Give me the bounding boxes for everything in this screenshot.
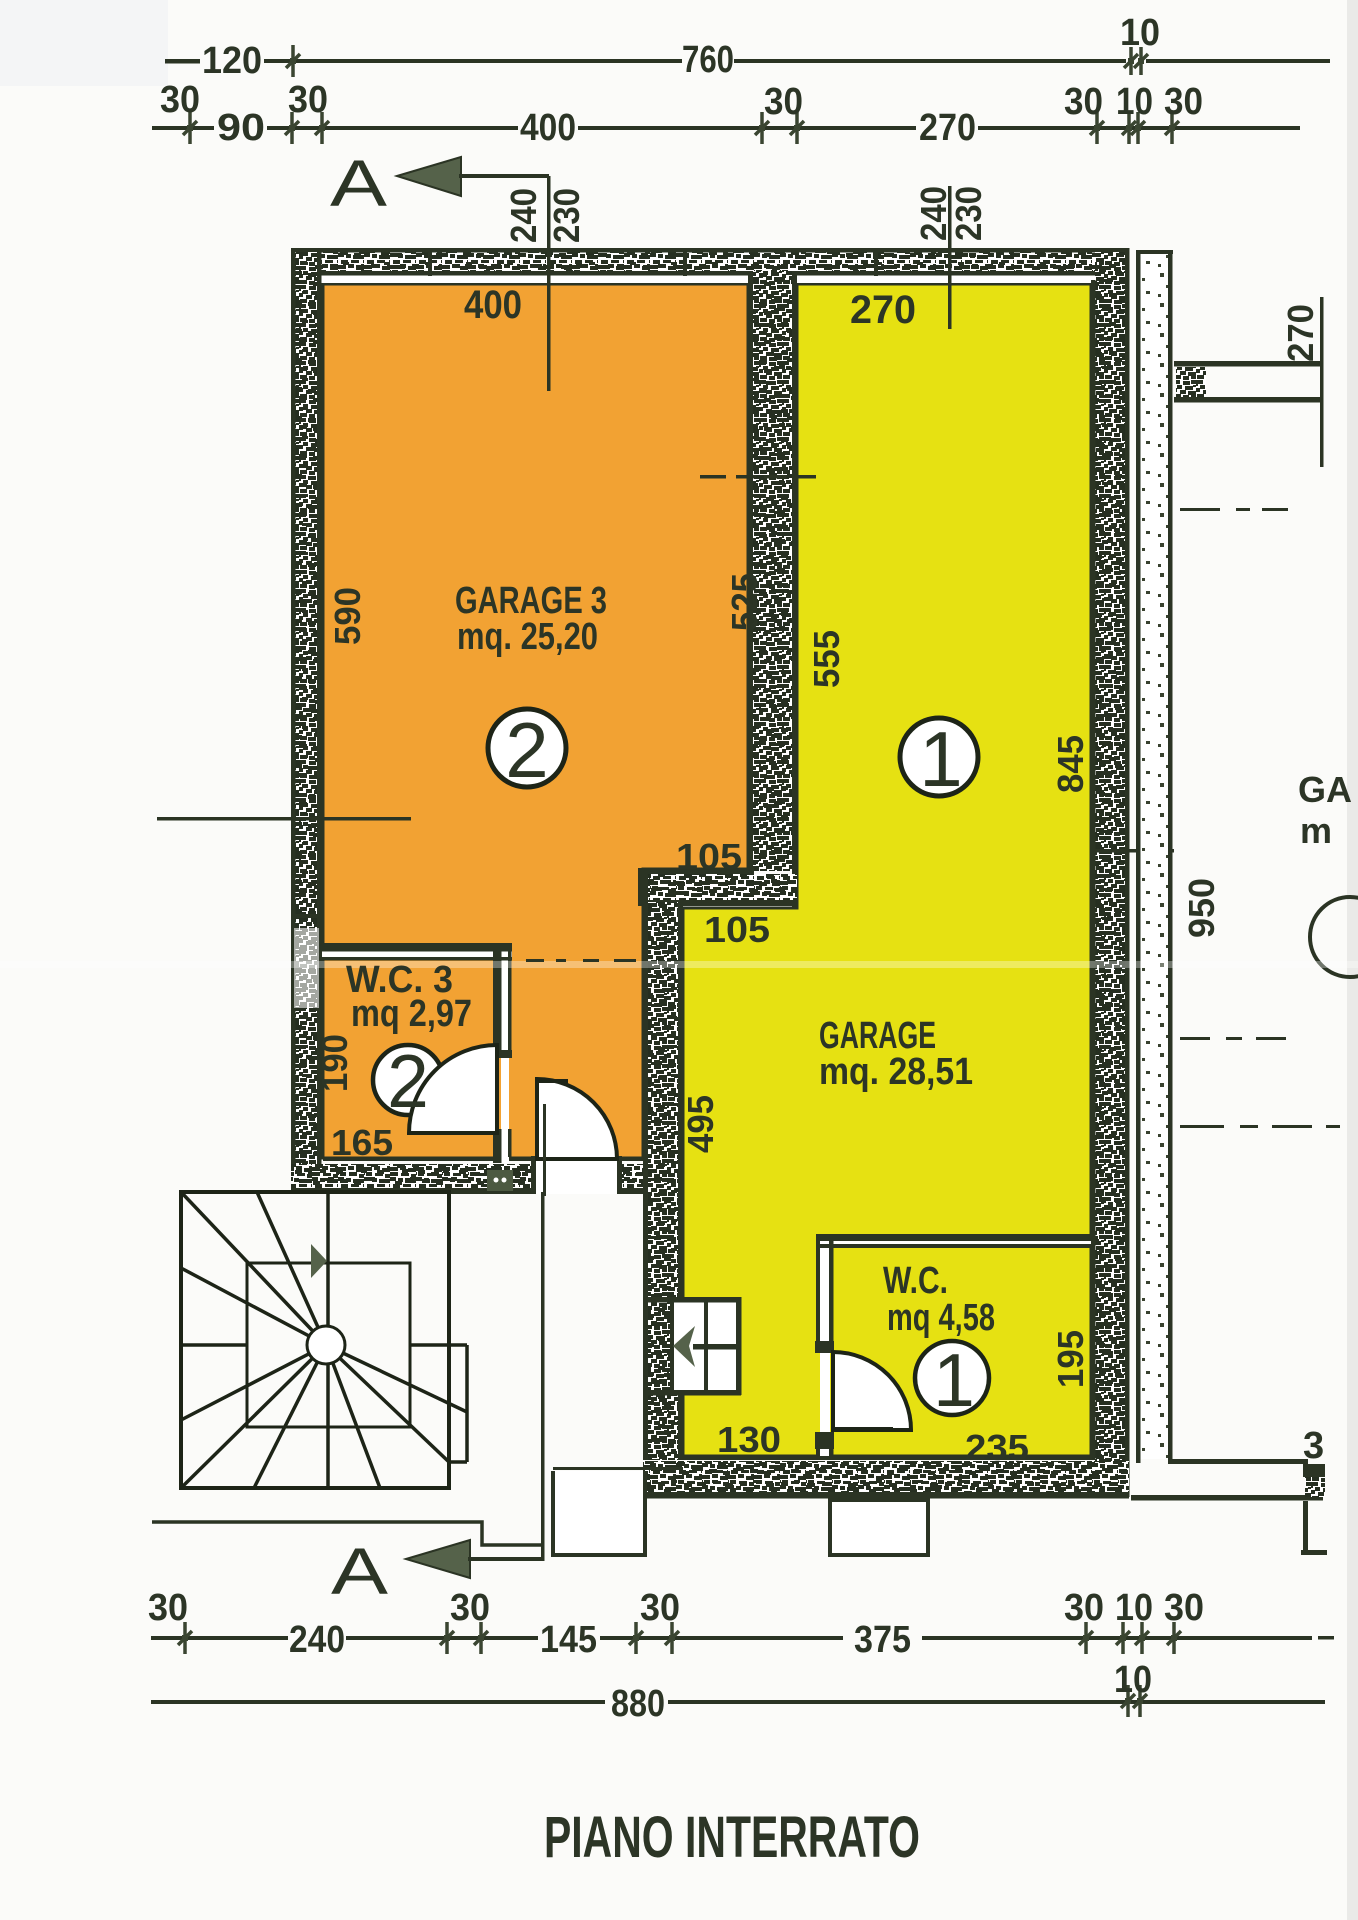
svg-text:270: 270 xyxy=(919,107,976,149)
svg-text:1: 1 xyxy=(919,715,962,803)
svg-text:190: 190 xyxy=(314,1034,355,1092)
svg-text:mq. 25,20: mq. 25,20 xyxy=(457,616,598,658)
svg-text:270: 270 xyxy=(850,288,916,332)
svg-text:120: 120 xyxy=(202,40,262,82)
svg-text:30: 30 xyxy=(640,1587,680,1629)
svg-text:mq 4,58: mq 4,58 xyxy=(887,1297,995,1339)
svg-text:30: 30 xyxy=(1064,81,1103,123)
svg-text:165: 165 xyxy=(331,1122,393,1163)
svg-text:195: 195 xyxy=(1050,1330,1091,1388)
svg-text:240: 240 xyxy=(503,188,544,243)
svg-text:30: 30 xyxy=(1064,1587,1104,1629)
svg-text:2: 2 xyxy=(505,706,548,794)
svg-text:mq. 28,51: mq. 28,51 xyxy=(819,1051,973,1093)
svg-text:400: 400 xyxy=(520,107,576,149)
svg-text:1: 1 xyxy=(933,1338,975,1422)
svg-text:270: 270 xyxy=(1280,304,1321,362)
svg-text:PIANO INTERRATO: PIANO INTERRATO xyxy=(544,1805,920,1870)
svg-text:10: 10 xyxy=(1116,81,1153,123)
svg-text:GA: GA xyxy=(1298,769,1352,810)
svg-text:90: 90 xyxy=(217,107,265,149)
svg-text:555: 555 xyxy=(806,630,847,688)
svg-text:3: 3 xyxy=(1303,1425,1324,1467)
svg-text:230: 230 xyxy=(546,188,587,243)
svg-text:A: A xyxy=(331,1534,388,1608)
svg-text:10: 10 xyxy=(1115,1587,1153,1629)
svg-text:590: 590 xyxy=(327,587,368,645)
svg-text:W.C.: W.C. xyxy=(883,1260,948,1302)
svg-text:30: 30 xyxy=(288,79,328,121)
svg-text:2: 2 xyxy=(387,1039,429,1123)
svg-text:30: 30 xyxy=(764,81,803,123)
svg-text:30: 30 xyxy=(450,1587,490,1629)
svg-text:240: 240 xyxy=(289,1619,345,1661)
svg-text:495: 495 xyxy=(680,1095,721,1153)
svg-text:375: 375 xyxy=(854,1619,911,1661)
svg-text:845: 845 xyxy=(1050,735,1091,793)
svg-text:760: 760 xyxy=(682,39,734,81)
svg-text:230: 230 xyxy=(948,186,989,241)
svg-text:m: m xyxy=(1300,810,1332,851)
svg-text:400: 400 xyxy=(464,283,522,327)
svg-text:880: 880 xyxy=(611,1683,665,1725)
svg-text:10: 10 xyxy=(1120,12,1160,54)
svg-text:30: 30 xyxy=(160,79,200,121)
svg-text:105: 105 xyxy=(704,909,770,950)
svg-text:10: 10 xyxy=(1114,1659,1152,1701)
svg-text:105: 105 xyxy=(676,836,742,877)
svg-text:235: 235 xyxy=(965,1427,1029,1468)
svg-text:525: 525 xyxy=(724,573,765,631)
svg-text:A: A xyxy=(330,146,387,220)
svg-text:30: 30 xyxy=(148,1587,188,1629)
svg-text:950: 950 xyxy=(1181,878,1222,938)
svg-text:30: 30 xyxy=(1164,81,1203,123)
svg-text:145: 145 xyxy=(540,1619,597,1661)
svg-text:30: 30 xyxy=(1164,1587,1204,1629)
svg-text:mq 2,97: mq 2,97 xyxy=(351,993,472,1035)
svg-text:130: 130 xyxy=(717,1419,781,1460)
